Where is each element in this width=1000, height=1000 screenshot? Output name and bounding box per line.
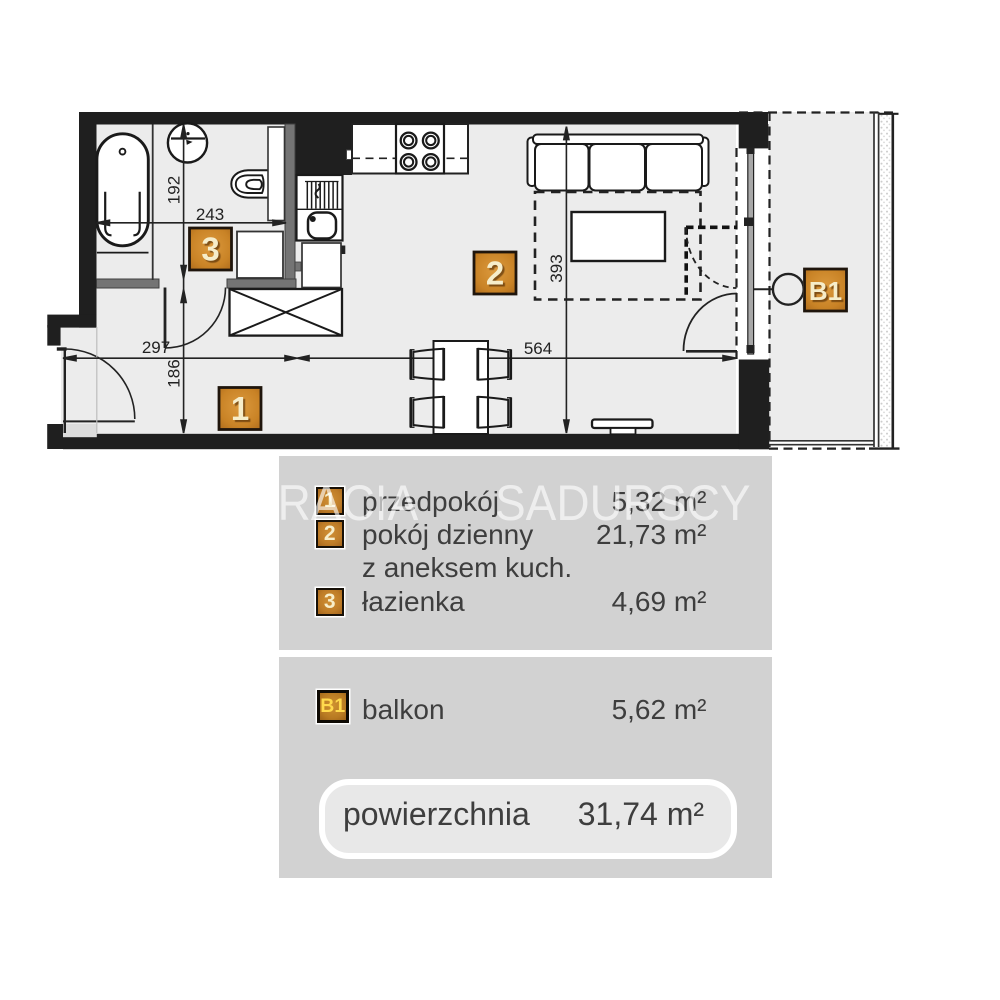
svg-text:192: 192 [165, 176, 184, 204]
svg-text:B1: B1 [809, 276, 842, 306]
svg-text:243: 243 [196, 205, 224, 224]
svg-text:297: 297 [142, 338, 170, 357]
svg-text:3: 3 [201, 231, 219, 268]
svg-text:1: 1 [231, 390, 249, 427]
svg-text:2: 2 [486, 255, 504, 292]
svg-text:186: 186 [165, 359, 184, 387]
svg-text:564: 564 [524, 339, 552, 358]
svg-text:393: 393 [547, 254, 566, 282]
